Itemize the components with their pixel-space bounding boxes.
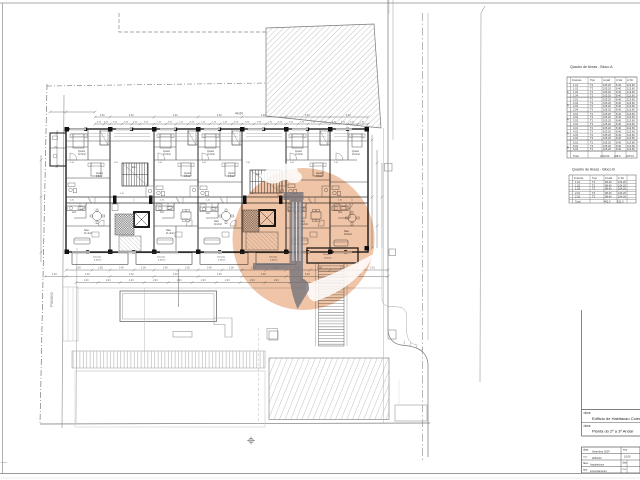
svg-text:98.40: 98.40: [605, 186, 612, 190]
svg-text:Quarto: Quarto: [352, 150, 360, 153]
svg-text:4.40: 4.40: [129, 273, 134, 276]
svg-text:105.20: 105.20: [603, 122, 611, 126]
svg-text:113.60: 113.60: [627, 147, 635, 151]
svg-text:105.20: 105.20: [603, 112, 611, 116]
svg-text:2.04: 2.04: [573, 108, 579, 112]
svg-text:obra:: obra:: [584, 411, 592, 415]
svg-text:1.03: 1.03: [573, 90, 579, 94]
svg-text:8.40: 8.40: [616, 90, 622, 94]
svg-text:8.40: 8.40: [616, 133, 622, 137]
svg-text:8.40: 8.40: [616, 147, 622, 151]
svg-text:105.20: 105.20: [603, 119, 611, 123]
svg-text:2.60: 2.60: [76, 267, 81, 270]
svg-text:8.40: 8.40: [616, 122, 622, 126]
svg-text:2.20: 2.20: [225, 280, 230, 282]
svg-text:2.20: 2.20: [201, 280, 206, 282]
svg-text:98.40: 98.40: [605, 194, 612, 198]
svg-text:4.40: 4.40: [85, 273, 90, 276]
svg-text:4.40: 4.40: [217, 115, 222, 117]
svg-text:A.Tot: A.Tot: [618, 176, 624, 180]
svg-text:Esc.: Esc.: [132, 167, 137, 169]
svg-text:2.20: 2.20: [153, 280, 158, 282]
svg-text:Licenciamento: Licenciamento: [590, 469, 607, 473]
svg-text:Fraccao: Fraccao: [574, 176, 584, 180]
svg-text:8.40: 8.40: [616, 108, 622, 112]
svg-text:8.40: 8.40: [616, 119, 622, 123]
svg-text:4.00m2: 4.00m2: [218, 260, 226, 262]
svg-text:Passeio: Passeio: [49, 291, 54, 307]
svg-text:2.40: 2.40: [119, 267, 124, 270]
svg-text:105.20: 105.20: [603, 140, 611, 144]
svg-text:Coz.: Coz.: [160, 212, 165, 214]
svg-text:A.Tot: A.Tot: [627, 78, 633, 82]
svg-text:n.o:: n.o:: [583, 455, 588, 458]
svg-text:2.00: 2.00: [141, 267, 146, 270]
svg-text:8.40: 8.40: [616, 93, 622, 97]
svg-text:2004-02: 2004-02: [592, 456, 602, 460]
svg-text:44.60: 44.60: [235, 112, 243, 116]
svg-text:113.60: 113.60: [627, 104, 635, 108]
svg-text:4.40: 4.40: [129, 115, 134, 117]
svg-text:105.20: 105.20: [603, 93, 611, 97]
svg-text:8.40: 8.40: [616, 136, 622, 140]
svg-text:esc:: esc:: [623, 449, 628, 452]
svg-text:113.60: 113.60: [627, 122, 635, 126]
svg-text:3.04: 3.04: [573, 122, 579, 126]
svg-text:4º: 4º: [566, 132, 570, 134]
svg-text:2.20: 2.20: [84, 280, 89, 282]
svg-text:104.20: 104.20: [618, 186, 626, 190]
svg-text:168.0: 168.0: [614, 154, 621, 158]
svg-text:2º: 2º: [566, 104, 570, 106]
svg-text:2.03: 2.03: [573, 104, 579, 108]
svg-text:521.0: 521.0: [617, 199, 624, 203]
svg-text:Esc.: Esc.: [256, 174, 261, 176]
svg-text:Quadro de Areas - Bloco A: Quadro de Areas - Bloco A: [570, 65, 613, 69]
svg-text:8.40: 8.40: [616, 98, 622, 102]
svg-text:113.60: 113.60: [627, 90, 635, 94]
svg-text:obra:: obra:: [584, 424, 592, 428]
svg-text:4.40: 4.40: [52, 273, 57, 276]
svg-text:105.20: 105.20: [603, 83, 611, 87]
svg-text:1.01: 1.01: [573, 83, 579, 87]
svg-text:4.40: 4.40: [100, 115, 105, 117]
svg-text:10.2m2: 10.2m2: [352, 154, 360, 156]
svg-text:9.8m2: 9.8m2: [228, 176, 235, 178]
svg-text:4.01: 4.01: [573, 126, 579, 130]
svg-text:Sala: Sala: [166, 230, 171, 232]
svg-text:4.40: 4.40: [346, 115, 351, 117]
svg-text:2.20: 2.20: [129, 280, 134, 282]
svg-text:n.o: n.o: [623, 468, 627, 471]
svg-text:105.20: 105.20: [603, 126, 611, 130]
svg-text:2.20: 2.20: [106, 280, 111, 282]
svg-text:105.20: 105.20: [603, 98, 611, 102]
svg-text:Quarto: Quarto: [207, 150, 215, 153]
svg-text:113.60: 113.60: [627, 83, 635, 87]
svg-text:104.20: 104.20: [618, 194, 626, 198]
svg-text:5.01: 5.01: [573, 140, 579, 144]
svg-text:9.8m2: 9.8m2: [184, 176, 191, 178]
svg-text:4.40: 4.40: [261, 115, 266, 117]
svg-text:492.0: 492.0: [604, 199, 611, 203]
svg-text:4.00m2: 4.00m2: [158, 260, 166, 262]
svg-text:fase:: fase:: [583, 461, 589, 465]
svg-text:3.10: 3.10: [370, 267, 375, 270]
svg-text:3.01: 3.01: [573, 112, 579, 116]
svg-text:1.03: 1.03: [575, 186, 581, 190]
svg-text:Quarto: Quarto: [184, 172, 192, 175]
svg-text:Sala: Sala: [214, 221, 219, 223]
svg-text:20.2m2: 20.2m2: [214, 224, 222, 226]
svg-text:105.20: 105.20: [603, 108, 611, 112]
svg-text:113.60: 113.60: [627, 93, 635, 97]
svg-text:4.04: 4.04: [573, 136, 579, 140]
svg-text:2.02: 2.02: [575, 194, 581, 198]
svg-text:A.Hab: A.Hab: [603, 78, 611, 82]
svg-text:4.00m2: 4.00m2: [94, 260, 102, 262]
svg-text:Coz.: Coz.: [72, 212, 77, 214]
svg-text:113.60: 113.60: [627, 98, 635, 102]
svg-text:3º: 3º: [566, 118, 570, 120]
svg-text:I.S.: I.S.: [54, 147, 58, 149]
svg-text:Edificio de Habitacao Colectiv: Edificio de Habitacao Colectiva: [592, 416, 640, 421]
svg-text:tipo:: tipo:: [583, 467, 588, 471]
svg-text:21.4m2: 21.4m2: [166, 233, 174, 235]
svg-text:4.40: 4.40: [173, 115, 178, 117]
svg-text:Quarto: Quarto: [163, 150, 171, 153]
svg-text:113.60: 113.60: [627, 108, 635, 112]
svg-text:Setembro 2007: Setembro 2007: [592, 449, 610, 453]
svg-text:Coz.: Coz.: [206, 213, 211, 215]
svg-text:8.40: 8.40: [616, 140, 622, 144]
svg-text:105.20: 105.20: [603, 90, 611, 94]
svg-text:113.60: 113.60: [627, 126, 635, 130]
svg-text:113.60: 113.60: [627, 112, 635, 116]
svg-text:9.8m2: 9.8m2: [96, 176, 103, 178]
svg-text:5º: 5º: [566, 146, 570, 148]
svg-text:105.20: 105.20: [603, 136, 611, 140]
svg-text:113.60: 113.60: [627, 140, 635, 144]
svg-text:2.00: 2.00: [185, 267, 190, 270]
svg-text:1.04: 1.04: [573, 93, 579, 97]
svg-text:4.40: 4.40: [217, 273, 222, 276]
svg-text:113.60: 113.60: [627, 136, 635, 140]
svg-text:8.40: 8.40: [616, 112, 622, 116]
svg-text:8.40: 8.40: [616, 83, 622, 87]
svg-text:4.40: 4.40: [173, 273, 178, 276]
svg-text:data:: data:: [583, 448, 589, 452]
svg-text:Tipo: Tipo: [592, 176, 598, 180]
svg-text:2.40: 2.40: [163, 267, 168, 270]
svg-text:4.40: 4.40: [305, 115, 310, 117]
svg-text:2.20: 2.20: [177, 280, 182, 282]
svg-text:12.0m2: 12.0m2: [207, 154, 215, 156]
svg-text:Varanda: Varanda: [217, 256, 226, 259]
svg-text:1º: 1º: [566, 91, 570, 93]
svg-text:Quarto: Quarto: [78, 150, 86, 153]
svg-text:A.Var: A.Var: [616, 78, 622, 82]
svg-text:2104.00: 2104.00: [600, 154, 610, 158]
svg-text:12.0m2: 12.0m2: [78, 154, 86, 156]
svg-text:Quarto: Quarto: [96, 172, 104, 175]
svg-text:2.01: 2.01: [573, 98, 579, 102]
svg-text:1/100: 1/100: [624, 455, 631, 459]
svg-text:Tipo: Tipo: [590, 78, 596, 82]
svg-text:Sala: Sala: [84, 230, 89, 232]
svg-text:8.40: 8.40: [616, 126, 622, 130]
svg-text:113.60: 113.60: [627, 119, 635, 123]
svg-text:105.20: 105.20: [603, 133, 611, 137]
svg-text:21.4m2: 21.4m2: [84, 233, 92, 235]
svg-text:Total: Total: [575, 199, 581, 203]
svg-text:Arquitectura: Arquitectura: [590, 462, 605, 466]
svg-text:5.03: 5.03: [573, 147, 579, 151]
svg-text:105.20: 105.20: [603, 147, 611, 151]
svg-text:12.0m2: 12.0m2: [295, 154, 303, 156]
svg-text:113.60: 113.60: [627, 133, 635, 137]
svg-text:8.40: 8.40: [616, 104, 622, 108]
svg-text:A.Hab: A.Hab: [605, 176, 613, 180]
svg-text:12.0m2: 12.0m2: [163, 154, 171, 156]
svg-text:Fraccao: Fraccao: [572, 78, 582, 82]
svg-text:2.40: 2.40: [207, 267, 212, 270]
svg-text:Total: Total: [573, 154, 579, 158]
svg-text:4.03: 4.03: [573, 133, 579, 137]
svg-text:105.20: 105.20: [603, 104, 611, 108]
svg-text:1.80: 1.80: [98, 267, 103, 270]
svg-text:Varanda: Varanda: [157, 256, 166, 259]
svg-text:Quarto: Quarto: [228, 172, 236, 175]
svg-text:Varanda: Varanda: [93, 256, 102, 259]
svg-text:2.00: 2.00: [229, 267, 234, 270]
svg-text:3.03: 3.03: [573, 119, 579, 123]
svg-text:2272.0: 2272.0: [626, 154, 634, 158]
svg-text:Planta do 2º a 3º Andar: Planta do 2º a 3º Andar: [592, 429, 634, 434]
svg-text:des.: des.: [623, 461, 628, 465]
svg-text:Quarto: Quarto: [295, 150, 303, 153]
svg-text:Quadro de Areas - Bloco B: Quadro de Areas - Bloco B: [572, 168, 615, 172]
